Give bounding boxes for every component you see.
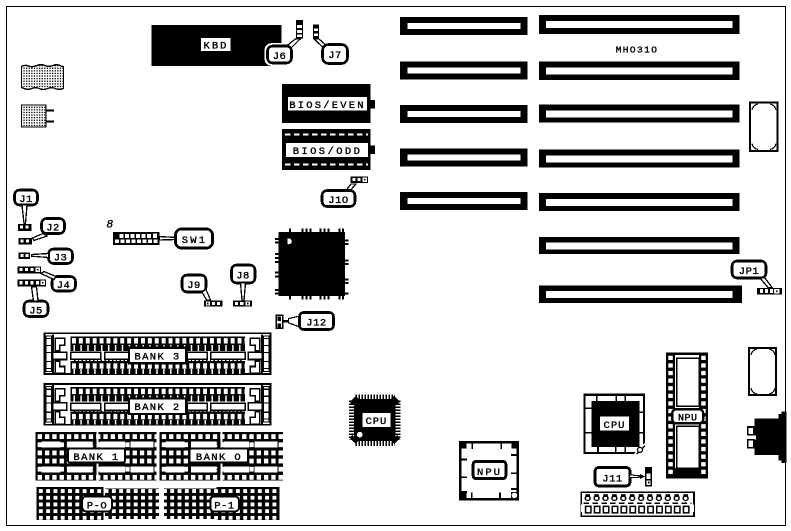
svg-text:SW1: SW1 bbox=[182, 235, 208, 247]
svg-text:J3: J3 bbox=[54, 253, 68, 265]
svg-text:MHO31O: MHO31O bbox=[616, 45, 659, 56]
svg-text:CPU: CPU bbox=[604, 420, 626, 432]
svg-text:J7: J7 bbox=[328, 50, 342, 62]
svg-text:J6: J6 bbox=[273, 51, 287, 63]
svg-text:8: 8 bbox=[107, 220, 114, 232]
svg-text:NPU: NPU bbox=[678, 413, 698, 424]
svg-text:P-O: P-O bbox=[87, 500, 107, 512]
svg-text:J4: J4 bbox=[57, 280, 71, 292]
svg-text:P-1: P-1 bbox=[214, 500, 234, 512]
svg-text:BIOS/EVEN: BIOS/EVEN bbox=[289, 100, 366, 112]
svg-text:BANK O: BANK O bbox=[196, 452, 242, 464]
svg-text:KBD: KBD bbox=[204, 41, 229, 53]
svg-text:J12: J12 bbox=[306, 318, 326, 330]
svg-text:BIOS/ODD: BIOS/ODD bbox=[293, 146, 363, 158]
svg-text:J8: J8 bbox=[236, 271, 250, 283]
svg-text:J5: J5 bbox=[29, 306, 43, 318]
svg-text:JP1: JP1 bbox=[739, 266, 759, 278]
svg-text:NPU: NPU bbox=[477, 467, 502, 479]
svg-text:J2: J2 bbox=[46, 223, 60, 235]
svg-text:BANK 1: BANK 1 bbox=[73, 452, 119, 464]
svg-text:J1O: J1O bbox=[328, 195, 348, 207]
svg-text:BANK 3: BANK 3 bbox=[134, 352, 180, 364]
svg-text:BANK 2: BANK 2 bbox=[134, 402, 180, 414]
svg-text:CPU: CPU bbox=[365, 416, 387, 428]
svg-text:J1: J1 bbox=[19, 194, 33, 206]
svg-text:J9: J9 bbox=[187, 280, 201, 292]
svg-text:J11: J11 bbox=[602, 474, 622, 486]
